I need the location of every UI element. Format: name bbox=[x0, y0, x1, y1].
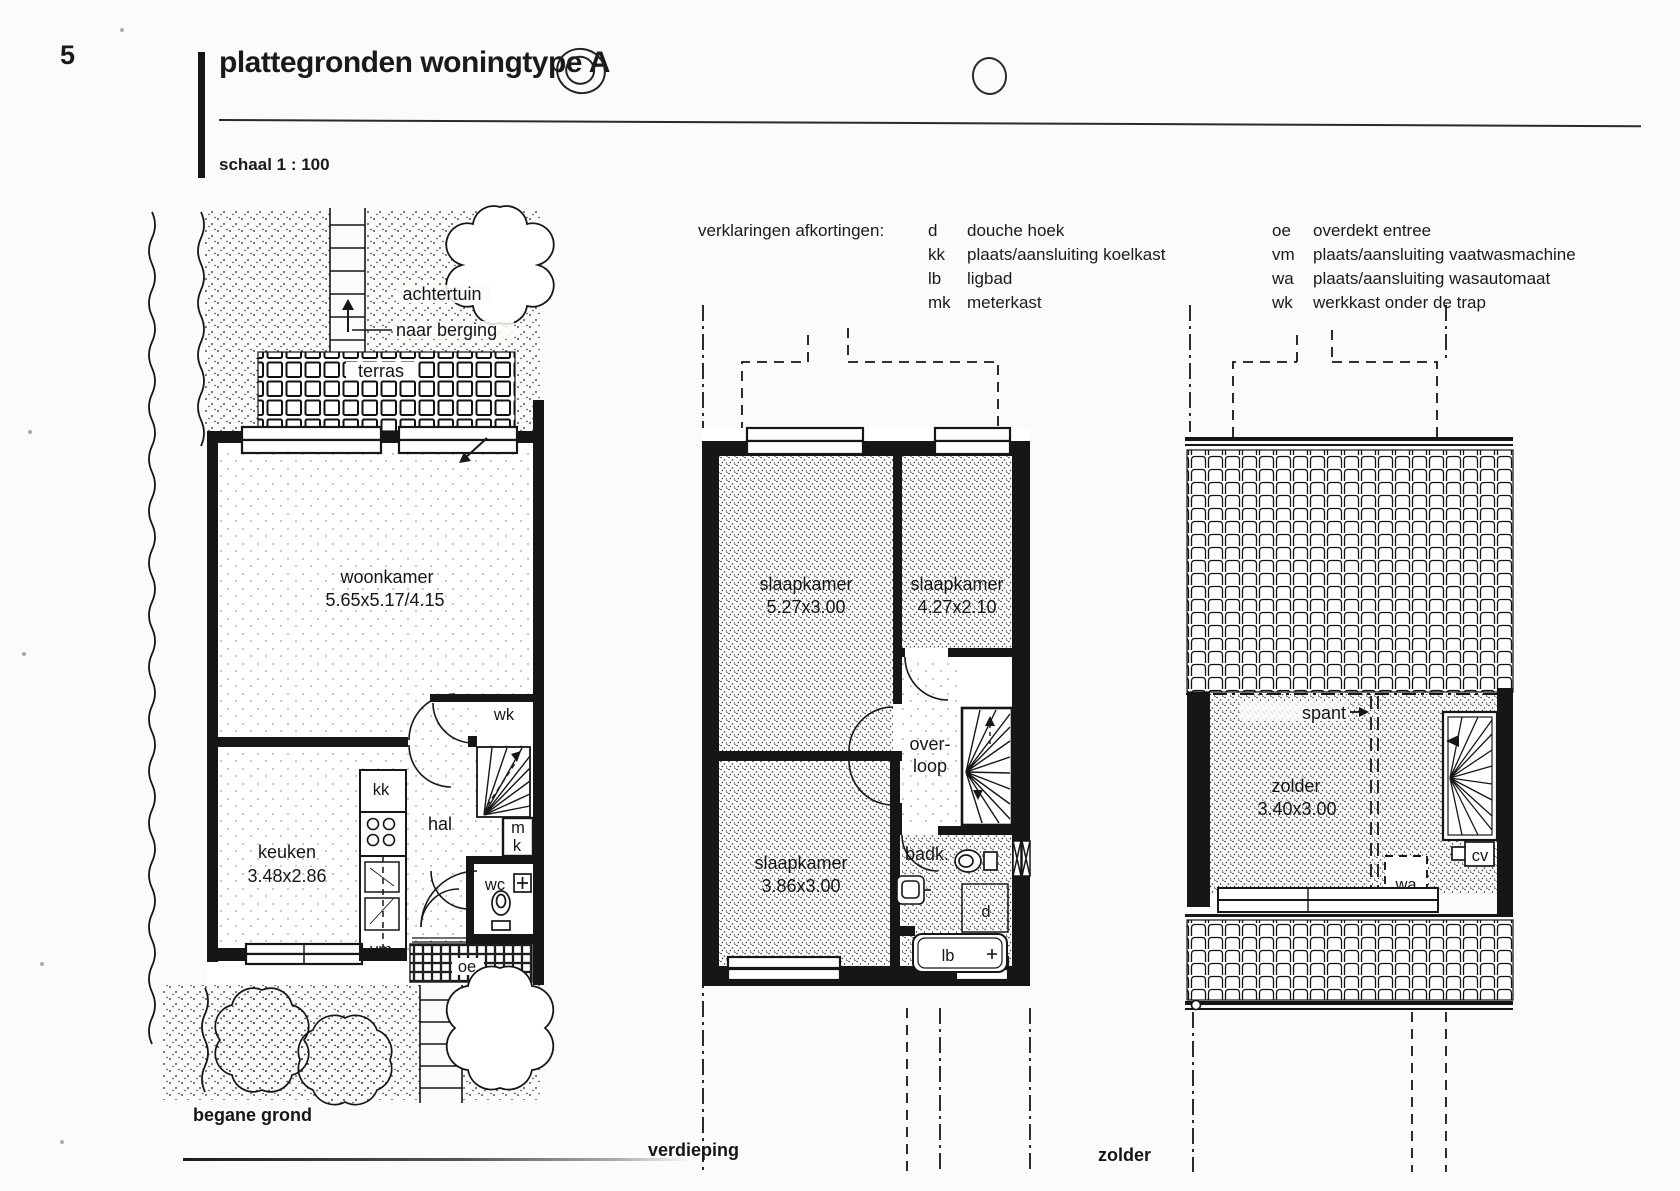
attic-room-size: 3.40x3.00 bbox=[1257, 799, 1336, 819]
first-floor-caption: verdieping bbox=[648, 1140, 739, 1160]
meter-label-k: k bbox=[513, 837, 522, 855]
title-underline bbox=[219, 119, 1641, 127]
legend-abbr: oe bbox=[1272, 221, 1291, 241]
bedroom1-size: 5.27x3.00 bbox=[766, 597, 845, 617]
toilet-label: wc bbox=[484, 876, 505, 894]
legend-abbr: wa bbox=[1272, 269, 1294, 289]
bathroom-label: badk. bbox=[905, 844, 949, 864]
first-floor-house: slaapkamer 5.27x3.00 slaapkamer 4.27x2.1… bbox=[702, 428, 1030, 986]
page-number: 5 bbox=[60, 40, 75, 71]
legend-abbr: kk bbox=[928, 245, 945, 265]
legend-desc: plaats/aansluiting vaatwasmachine bbox=[1313, 245, 1576, 265]
document-page: 5 plattegronden woningtype A schaal 1 : … bbox=[0, 0, 1680, 1191]
bedroom3-label: slaapkamer bbox=[754, 853, 847, 873]
legend-desc: douche hoek bbox=[967, 221, 1064, 241]
truss-label: spant bbox=[1302, 703, 1346, 723]
attic-caption: zolder bbox=[1098, 1145, 1151, 1165]
bedroom2-floor bbox=[902, 456, 1012, 648]
meter-label-m: m bbox=[511, 819, 525, 837]
fridge-label: kk bbox=[373, 781, 390, 799]
landing-label-line1: over- bbox=[909, 734, 950, 754]
bedroom2-label: slaapkamer bbox=[910, 574, 1003, 594]
scale-label: schaal 1 : 100 bbox=[219, 155, 330, 175]
bathtub-icon bbox=[913, 934, 1007, 972]
toilet-icon bbox=[955, 850, 997, 872]
back-garden-label: achtertuin bbox=[402, 284, 481, 304]
legend-abbr: lb bbox=[928, 269, 941, 289]
drain-circle-icon bbox=[1192, 1001, 1201, 1010]
ground-floor-house: woonkamer 5.65x5.17/4.15 wk kk hal m k k… bbox=[207, 400, 544, 985]
terrace-label: terras bbox=[358, 361, 404, 381]
scan-speck bbox=[120, 28, 124, 32]
tree-icon bbox=[446, 206, 553, 324]
title-vertical-rule bbox=[198, 52, 205, 178]
bedroom3-size: 3.86x3.00 bbox=[761, 876, 840, 896]
front-garden bbox=[163, 966, 553, 1104]
scan-smudge bbox=[183, 1158, 691, 1161]
legend-desc: plaats/aansluiting koelkast bbox=[967, 245, 1165, 265]
ground-floor-plan: achtertuin naar berging terras bbox=[140, 195, 570, 1140]
legend-desc: plaats/aansluiting wasautomaat bbox=[1313, 269, 1550, 289]
kitchen-size: 3.48x2.86 bbox=[247, 866, 326, 886]
louvre-window-icon bbox=[1013, 841, 1030, 876]
stamp-mark bbox=[969, 54, 1010, 98]
bedroom1-label: slaapkamer bbox=[759, 574, 852, 594]
attic-room-label: zolder bbox=[1271, 776, 1320, 796]
heater-label: cv bbox=[1472, 847, 1489, 865]
to-shed-label: naar berging bbox=[396, 320, 497, 340]
kitchen-label: keuken bbox=[258, 842, 316, 862]
stairs bbox=[1443, 712, 1497, 840]
bedroom2-size: 4.27x2.10 bbox=[917, 597, 996, 617]
scan-speck bbox=[28, 430, 32, 434]
legend-desc: overdekt entree bbox=[1313, 221, 1431, 241]
landing-label-line2: loop bbox=[913, 756, 947, 776]
legend-abbr: d bbox=[928, 221, 937, 241]
closet-label: wk bbox=[493, 706, 515, 724]
legend-abbr: vm bbox=[1272, 245, 1295, 265]
first-floor-plan: slaapkamer 5.27x3.00 slaapkamer 4.27x2.1… bbox=[630, 295, 1060, 1175]
hedge-line bbox=[149, 212, 155, 1044]
page-title: plattegronden woningtype A bbox=[219, 46, 610, 80]
ground-floor-caption: begane grond bbox=[193, 1105, 312, 1125]
scan-speck bbox=[22, 652, 26, 656]
shower-label: d bbox=[981, 903, 990, 921]
living-room-size: 5.65x5.17/4.15 bbox=[325, 590, 444, 610]
living-room-label: woonkamer bbox=[339, 567, 433, 587]
hall-label: hal bbox=[428, 814, 452, 834]
dishwasher-label: vm bbox=[370, 941, 392, 959]
attic-floor: spant cv wa zolder 3.40x3.00 bbox=[1186, 688, 1513, 914]
bath-label: lb bbox=[942, 947, 955, 965]
rear-roof-tiles bbox=[1185, 437, 1513, 692]
window bbox=[1218, 888, 1438, 912]
front-roof bbox=[1185, 888, 1513, 1010]
wc-window-icon bbox=[514, 874, 531, 892]
scan-speck bbox=[40, 962, 44, 966]
legend-heading: verklaringen afkortingen: bbox=[698, 221, 884, 241]
attic-plan: spant cv wa zolder 3.40x3.00 bbox=[1080, 295, 1525, 1175]
scan-speck bbox=[60, 1140, 64, 1144]
legend-desc: ligbad bbox=[967, 269, 1012, 289]
hedge-line bbox=[198, 212, 204, 446]
